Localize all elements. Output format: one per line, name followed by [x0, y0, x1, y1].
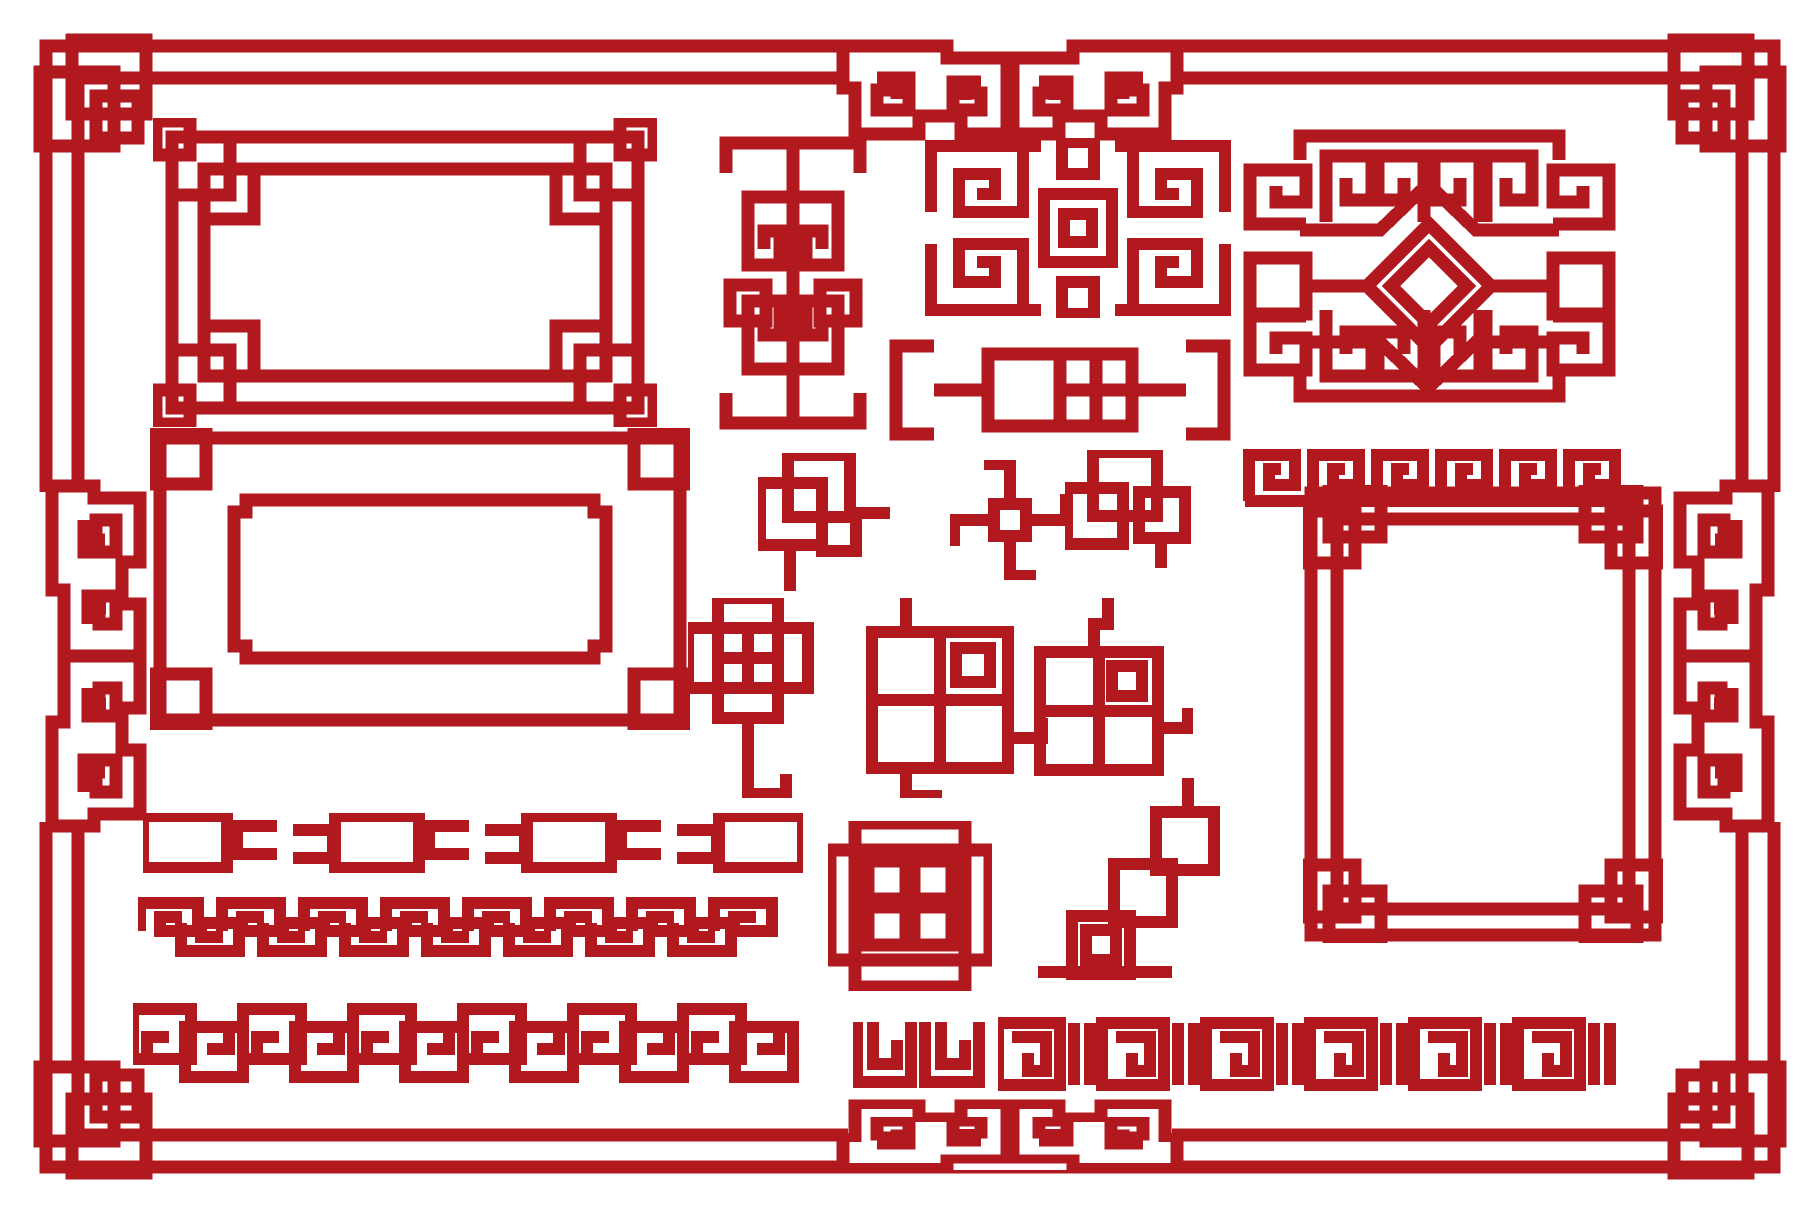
lattice-block — [923, 138, 1233, 318]
cross-medallion — [828, 821, 992, 991]
meander-border — [138, 893, 798, 957]
corner-element-1 — [688, 598, 833, 798]
bracket-divider — [888, 338, 1232, 442]
diamond-banner — [1242, 126, 1617, 406]
spiral-bar-border — [998, 1013, 1648, 1097]
double-scroll-divider — [853, 1018, 987, 1092]
linked-squares-border — [133, 1003, 801, 1083]
small-knot-3 — [1065, 450, 1195, 570]
ornament-collection — [0, 0, 1820, 1213]
vertical-scroll-panel — [718, 133, 868, 433]
frame-knot-corners — [153, 118, 657, 427]
staircase-corner — [1038, 778, 1238, 1003]
small-knot-2 — [950, 460, 1070, 580]
corner-element-3 — [1018, 598, 1193, 783]
chain-border — [143, 813, 803, 873]
large-square-frame — [1303, 485, 1663, 943]
frame-stepped — [150, 428, 690, 730]
small-knot-1 — [758, 453, 893, 593]
